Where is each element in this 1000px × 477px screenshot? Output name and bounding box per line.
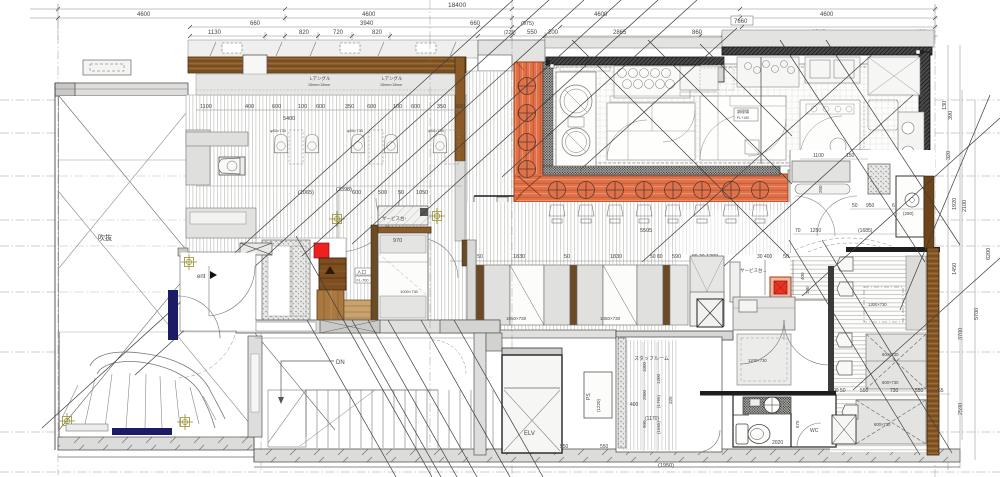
svg-text:50 80: 50 80 xyxy=(650,254,663,260)
svg-text:660: 660 xyxy=(250,21,261,27)
svg-text:720: 720 xyxy=(333,30,344,36)
svg-text:30 400: 30 400 xyxy=(757,254,773,260)
svg-text:2000: 2000 xyxy=(642,389,647,400)
svg-text:1200: 1200 xyxy=(656,373,661,384)
svg-text:320: 320 xyxy=(946,151,952,160)
svg-text:φ50×730: φ50×730 xyxy=(347,128,364,133)
svg-text:6: 6 xyxy=(892,203,895,209)
svg-text:50: 50 xyxy=(398,190,404,196)
svg-text:50: 50 xyxy=(852,203,858,209)
svg-text:550: 550 xyxy=(860,388,869,394)
svg-text:675: 675 xyxy=(795,420,800,428)
svg-text:1050×730: 1050×730 xyxy=(506,316,527,321)
svg-text:調理場: 調理場 xyxy=(737,108,749,114)
svg-text:4600: 4600 xyxy=(820,12,834,18)
svg-text:1920: 1920 xyxy=(952,198,958,210)
svg-text:(1220): (1220) xyxy=(596,398,601,412)
svg-text:970: 970 xyxy=(393,238,402,244)
svg-text:(1950): (1950) xyxy=(658,463,674,469)
svg-text:WC: WC xyxy=(810,428,819,434)
svg-text:4600: 4600 xyxy=(137,12,151,18)
svg-text:ELV: ELV xyxy=(524,431,535,437)
svg-text:820: 820 xyxy=(299,30,310,36)
svg-text:4600: 4600 xyxy=(594,12,608,18)
svg-text:サービス台→: サービス台→ xyxy=(740,267,767,274)
svg-text:55: 55 xyxy=(938,388,944,394)
svg-text:1100: 1100 xyxy=(813,153,824,159)
svg-text:730: 730 xyxy=(890,388,899,394)
svg-text:900: 900 xyxy=(642,420,647,428)
svg-text:550: 550 xyxy=(560,444,569,450)
svg-text:1100: 1100 xyxy=(200,104,212,110)
svg-text:600: 600 xyxy=(352,190,361,196)
svg-text:550: 550 xyxy=(915,388,924,394)
svg-text:5400: 5400 xyxy=(283,116,295,122)
svg-text:550: 550 xyxy=(527,30,538,36)
svg-text:50: 50 xyxy=(783,254,789,260)
svg-text:サービス台↑: サービス台↑ xyxy=(382,215,407,222)
svg-text:600×730: 600×730 xyxy=(882,380,899,385)
svg-text:250: 250 xyxy=(818,185,823,193)
svg-text:Lアングル: Lアングル xyxy=(382,75,403,82)
svg-text:1050: 1050 xyxy=(416,190,428,196)
svg-text:DN: DN xyxy=(336,360,345,366)
svg-text:400: 400 xyxy=(245,104,254,110)
svg-text:7660: 7660 xyxy=(734,19,748,25)
svg-text:18400: 18400 xyxy=(448,2,466,9)
svg-text:3700: 3700 xyxy=(958,328,964,340)
svg-text:600: 600 xyxy=(411,104,420,110)
svg-text:130: 130 xyxy=(942,101,948,110)
svg-text:820: 820 xyxy=(372,30,383,36)
svg-text:FL+150: FL+150 xyxy=(737,116,749,120)
svg-text:5505: 5505 xyxy=(640,228,652,234)
svg-text:50: 50 xyxy=(564,254,570,260)
svg-text:390: 390 xyxy=(948,111,954,120)
svg-text:100: 100 xyxy=(298,104,307,110)
svg-text:1130: 1130 xyxy=(208,30,222,36)
svg-text:3940: 3940 xyxy=(360,21,374,27)
svg-text:(1685): (1685) xyxy=(858,228,873,234)
svg-text:350: 350 xyxy=(437,104,446,110)
svg-text:(3398): (3398) xyxy=(336,187,352,193)
svg-text:600×730: 600×730 xyxy=(874,422,891,427)
svg-text:1250: 1250 xyxy=(810,228,821,234)
svg-text:2100: 2100 xyxy=(962,200,968,212)
svg-text:320: 320 xyxy=(668,396,673,404)
svg-text:950: 950 xyxy=(866,203,875,209)
svg-text:500: 500 xyxy=(378,190,387,196)
svg-text:150: 150 xyxy=(846,153,855,159)
svg-text:1450: 1450 xyxy=(952,263,958,275)
svg-text:φ50×730: φ50×730 xyxy=(270,128,287,133)
svg-text:1000×730: 1000×730 xyxy=(400,289,419,294)
svg-text:1300×730: 1300×730 xyxy=(868,302,887,307)
svg-text:(1765): (1765) xyxy=(656,394,661,408)
svg-text:1830: 1830 xyxy=(610,254,622,260)
svg-text:550: 550 xyxy=(600,444,609,450)
svg-text:590: 590 xyxy=(672,254,681,260)
svg-text:350: 350 xyxy=(345,104,354,110)
svg-text:600: 600 xyxy=(367,104,376,110)
svg-text:PS: PS xyxy=(586,393,592,400)
svg-text:吹抜: 吹抜 xyxy=(98,233,112,242)
svg-text:400: 400 xyxy=(800,272,805,280)
svg-text:1050×730: 1050×730 xyxy=(600,316,621,321)
svg-text:(290): (290) xyxy=(903,211,914,216)
svg-text:400: 400 xyxy=(630,402,639,408)
svg-text:FL-700: FL-700 xyxy=(357,279,369,283)
svg-text:2865: 2865 xyxy=(613,30,627,36)
svg-text:15mm×15mm: 15mm×15mm xyxy=(380,83,402,87)
svg-text:600: 600 xyxy=(272,104,281,110)
svg-text:1830: 1830 xyxy=(513,254,525,260)
svg-text:2590: 2590 xyxy=(958,403,964,415)
svg-text:(1565): (1565) xyxy=(656,420,661,434)
svg-text:スタッフルーム: スタッフルーム xyxy=(634,355,669,362)
svg-text:ent: ent xyxy=(197,274,206,280)
svg-text:1000: 1000 xyxy=(642,361,647,372)
svg-text:4600: 4600 xyxy=(362,12,376,18)
svg-text:6200: 6200 xyxy=(986,248,992,260)
svg-text:70: 70 xyxy=(795,228,801,234)
svg-text:Lアングル: Lアングル xyxy=(310,75,331,82)
svg-text:600: 600 xyxy=(316,104,325,110)
svg-text:2020: 2020 xyxy=(772,440,783,446)
svg-text:15mm×15mm: 15mm×15mm xyxy=(308,83,330,87)
